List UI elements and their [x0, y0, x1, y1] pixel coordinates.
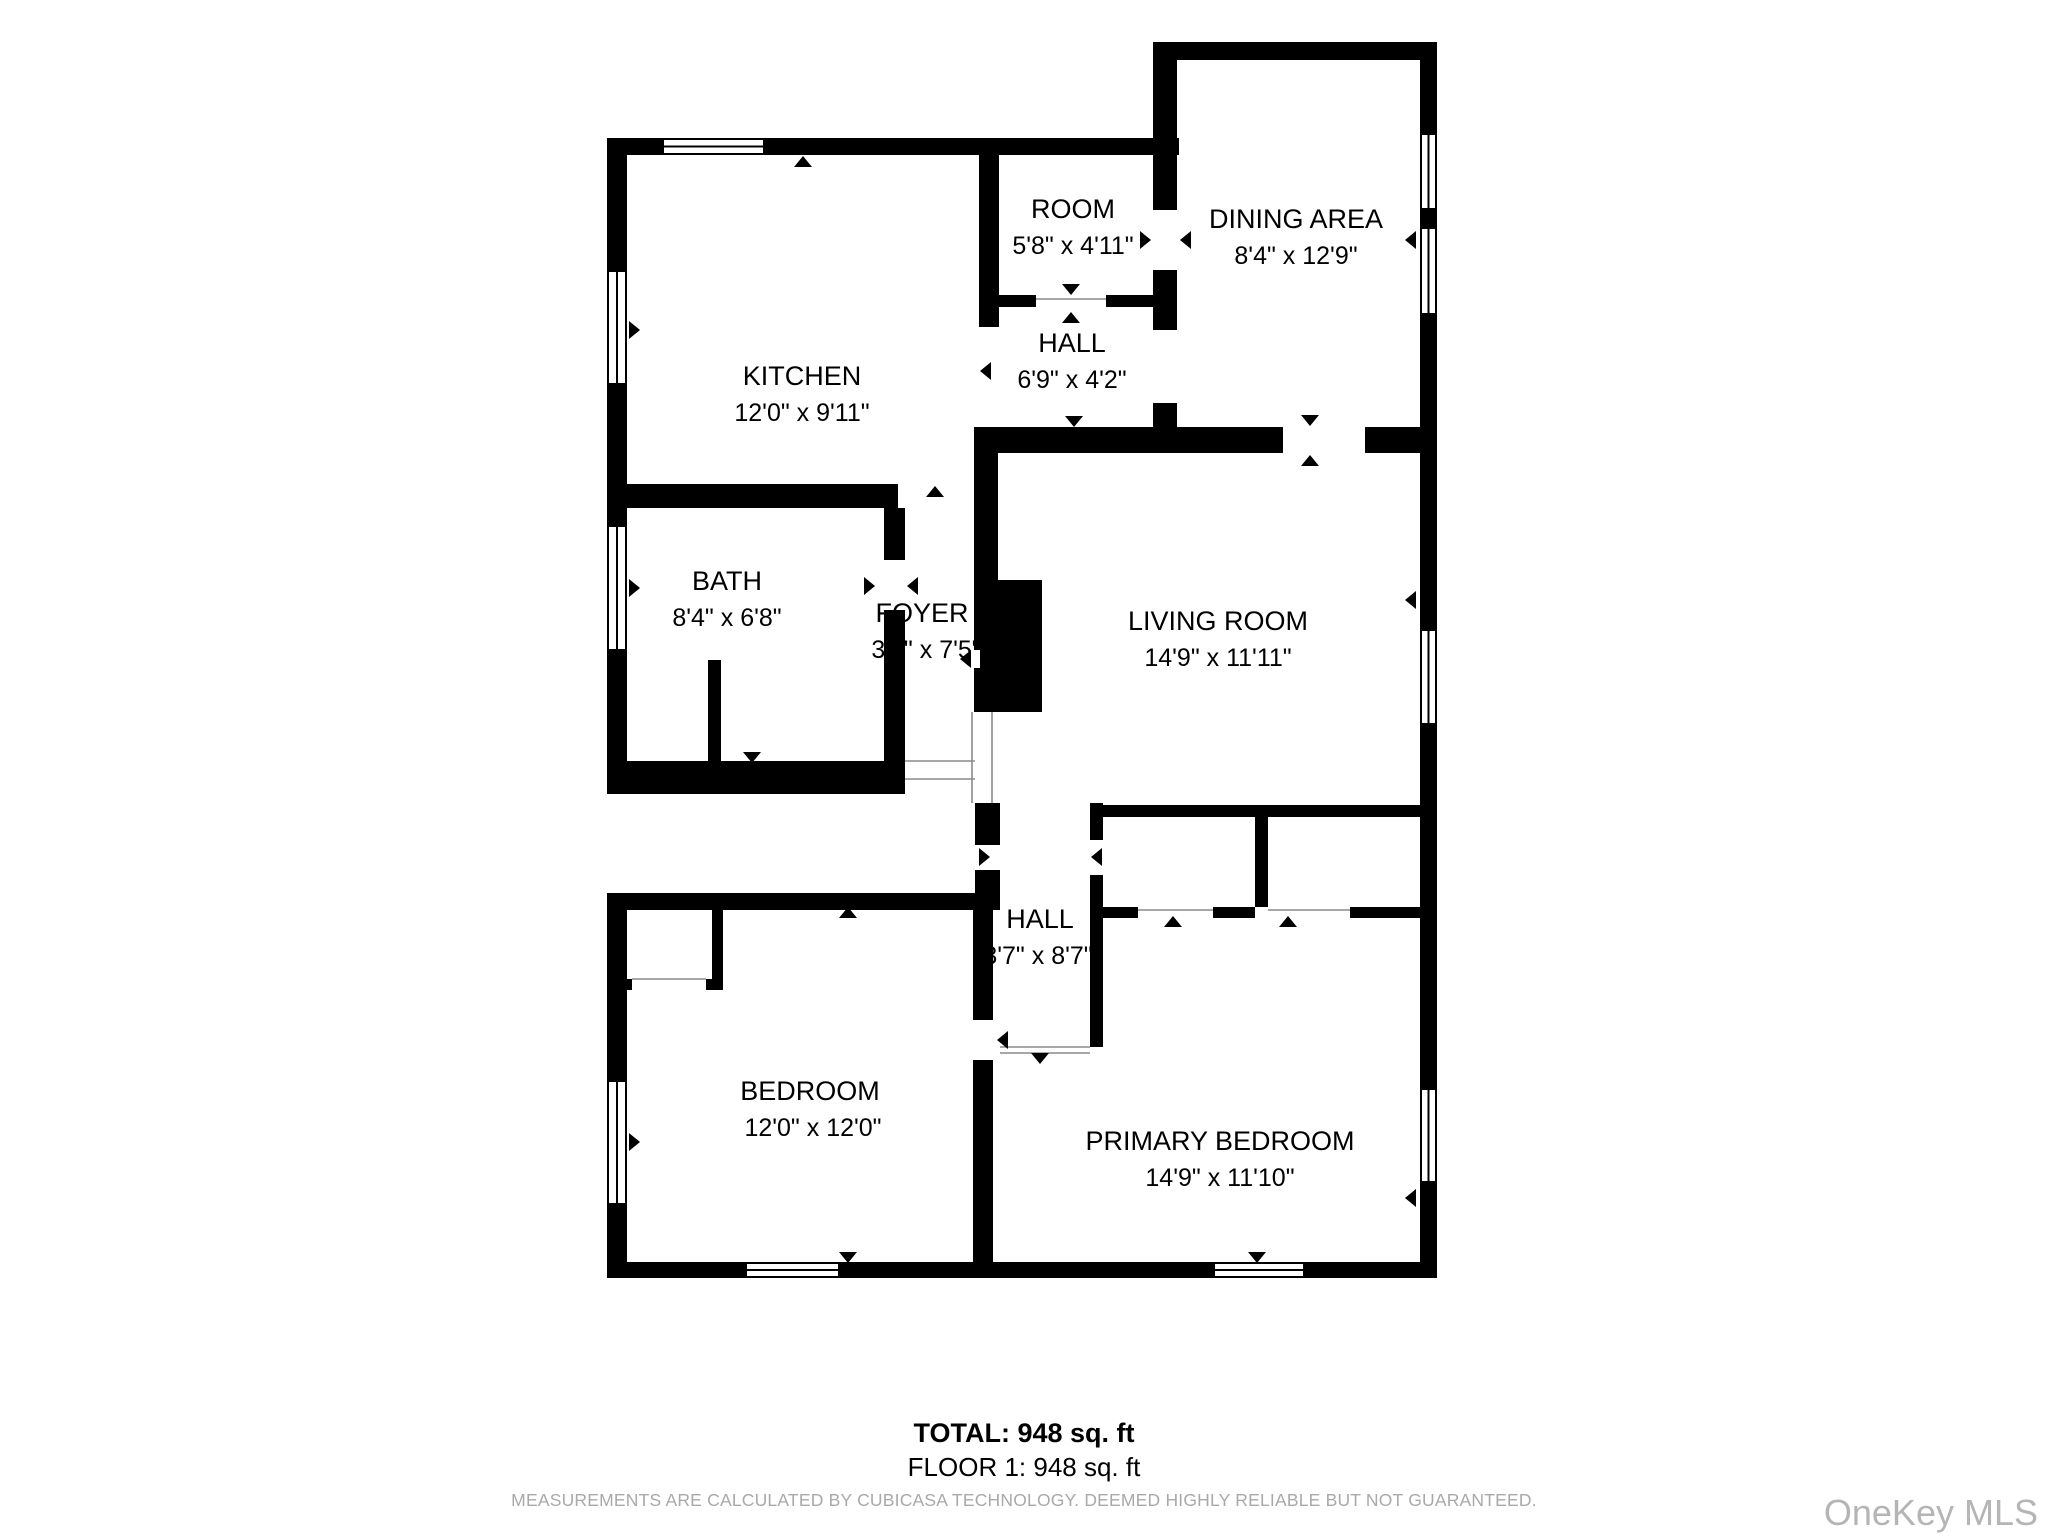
room-label-hall-lower: HALL3'7" x 8'7": [983, 904, 1092, 970]
opening-marker-icon: [1279, 916, 1297, 927]
opening-marker-icon: [1065, 416, 1083, 427]
room-dimensions: 8'4" x 6'8": [672, 604, 781, 632]
opening-marker-icon: [980, 362, 991, 380]
opening-marker-icon: [839, 1252, 857, 1263]
opening-marker-icon: [1062, 312, 1080, 323]
onekey-mls-watermark: OneKey MLS: [1824, 1492, 2038, 1534]
room-dimensions: 12'0" x 12'0": [744, 1114, 881, 1142]
room-label-bath: BATH8'4" x 6'8": [672, 566, 781, 632]
room-label-dining-area: DINING AREA8'4" x 12'9": [1209, 204, 1383, 270]
opening-marker-icon: [1405, 1189, 1416, 1207]
room-name: HALL: [1006, 904, 1074, 934]
window-glyph: [1420, 1083, 1437, 1188]
room-dimensions: 5'8" x 4'11": [1012, 232, 1133, 260]
total-area-text: TOTAL: 948 sq. ft: [0, 1418, 2048, 1449]
solid-block: [974, 580, 1042, 712]
opening-marker-icon: [629, 321, 640, 339]
opening-marker-icon: [794, 156, 812, 167]
opening-marker-icon: [1062, 284, 1080, 295]
room-name: BEDROOM: [740, 1076, 880, 1106]
opening-marker-icon: [1248, 1252, 1266, 1263]
window-glyph: [607, 265, 627, 390]
opening-marker-icon: [1091, 848, 1102, 866]
disclaimer-text: MEASUREMENTS ARE CALCULATED BY CUBICASA …: [0, 1490, 2048, 1511]
opening-marker-icon: [979, 848, 990, 866]
room-dimensions: 12'0" x 9'11": [734, 399, 869, 427]
floor-plan-drawing: KITCHEN12'0" x 9'11"ROOM5'8" x 4'11"DINI…: [0, 0, 2048, 1536]
opening-marker-icon: [1405, 591, 1416, 609]
floor-plan-page: KITCHEN12'0" x 9'11"ROOM5'8" x 4'11"DINI…: [0, 0, 2048, 1536]
opening-marker-icon: [1031, 1053, 1049, 1064]
window-glyph: [1420, 128, 1437, 215]
room-dimensions: 14'9" x 11'10": [1145, 1164, 1294, 1192]
floor-area-text: FLOOR 1: 948 sq. ft: [0, 1452, 2048, 1483]
room-label-hall-upper: HALL6'9" x 4'2": [1017, 328, 1126, 394]
opening-marker-icon: [1301, 415, 1319, 426]
room-label-primary-bedroom: PRIMARY BEDROOM14'9" x 11'10": [1085, 1126, 1354, 1192]
opening-marker-icon: [629, 1133, 640, 1151]
room-name: FOYER: [875, 598, 968, 628]
room-name: KITCHEN: [743, 361, 862, 391]
room-dimensions: 3'4" x 7'5": [871, 636, 980, 664]
window-glyph: [1420, 222, 1437, 320]
room-label-living-room: LIVING ROOM14'9" x 11'11": [1128, 606, 1308, 672]
room-label-kitchen: KITCHEN12'0" x 9'11": [734, 361, 869, 427]
opening-marker-icon: [1301, 455, 1319, 466]
window-glyph: [607, 1075, 627, 1210]
opening-marker-icon: [1140, 231, 1151, 249]
room-name: HALL: [1038, 328, 1106, 358]
room-name: DINING AREA: [1209, 204, 1383, 234]
window-glyph: [1420, 624, 1437, 730]
room-dimensions: 3'7" x 8'7": [983, 942, 1092, 970]
room-name: BATH: [692, 566, 762, 596]
room-dimensions: 6'9" x 4'2": [1017, 366, 1126, 394]
room-label-bedroom: BEDROOM12'0" x 12'0": [740, 1076, 881, 1142]
opening-marker-icon: [926, 486, 944, 497]
window-glyph: [657, 138, 770, 155]
opening-marker-icon: [1164, 916, 1182, 927]
opening-marker-icon: [629, 579, 640, 597]
room-dimensions: 14'9" x 11'11": [1144, 644, 1291, 672]
window-glyph: [1208, 1262, 1310, 1278]
window-glyph: [607, 520, 627, 656]
room-name: LIVING ROOM: [1128, 606, 1308, 636]
window-glyph: [740, 1262, 845, 1278]
room-name: ROOM: [1031, 194, 1115, 224]
room-dimensions: 8'4" x 12'9": [1234, 242, 1357, 270]
opening-marker-icon: [864, 577, 875, 595]
room-label-room: ROOM5'8" x 4'11": [1012, 194, 1133, 260]
opening-marker-icon: [907, 577, 918, 595]
room-name: PRIMARY BEDROOM: [1085, 1126, 1354, 1156]
opening-marker-icon: [1405, 231, 1416, 249]
opening-marker-icon: [1180, 231, 1191, 249]
